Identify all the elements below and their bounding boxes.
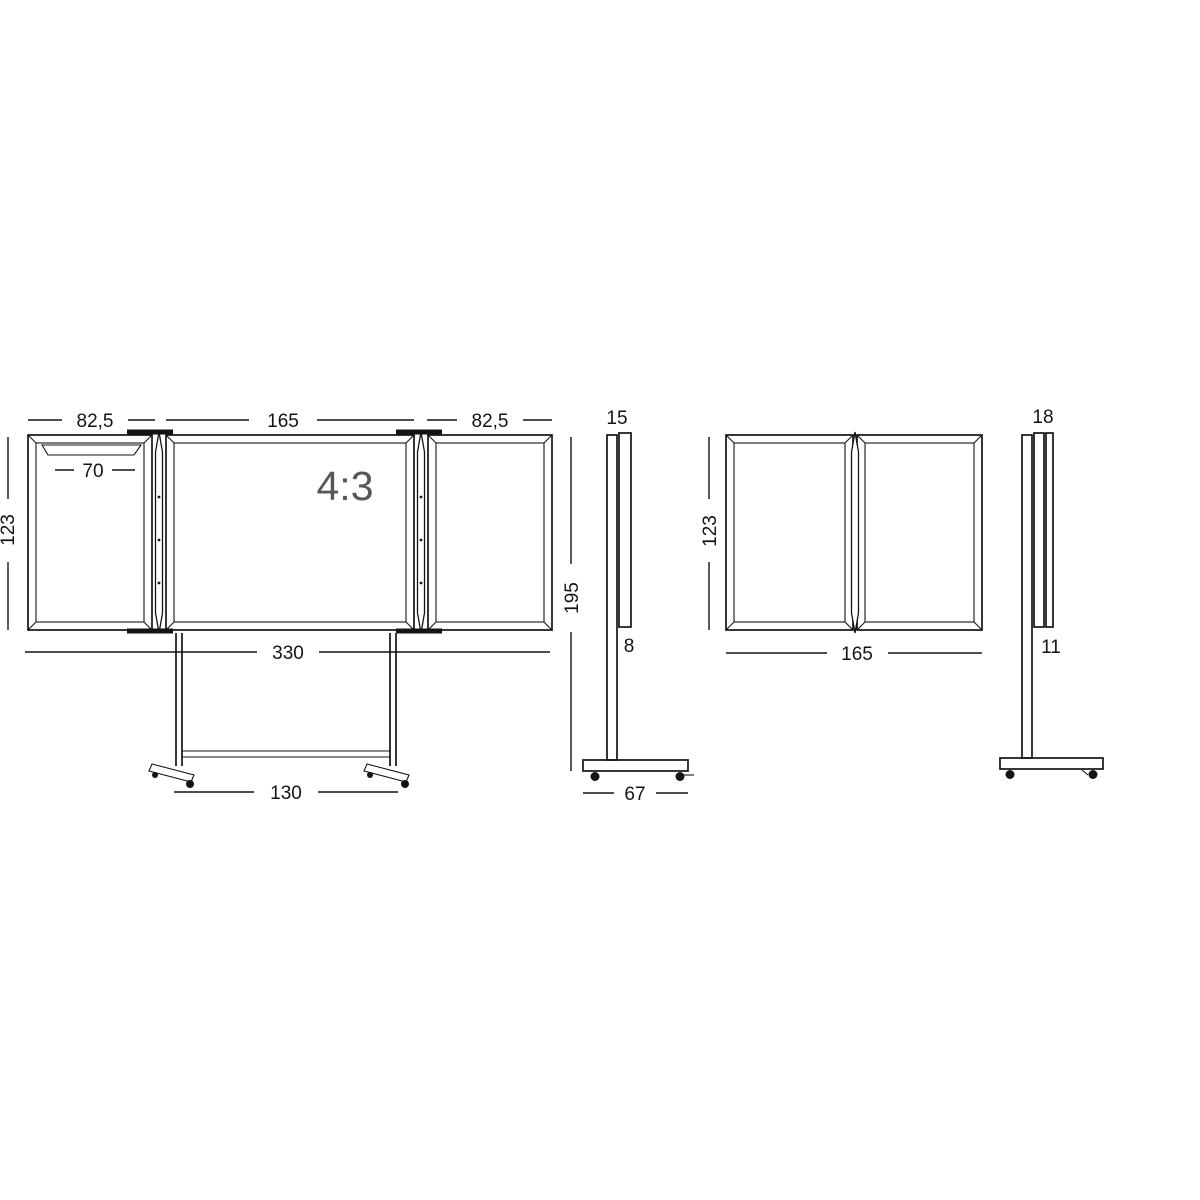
closed-side-base [1000,758,1103,769]
dim-wing-right: 82,5 [472,411,509,432]
clamp-bottom-left [127,629,173,634]
side-caster-right [676,772,685,781]
dim-panel-depth-closed: 11 [1041,637,1061,658]
dim-height-closed: 123 [700,515,721,547]
dimension-base-width: 130 [174,783,398,804]
dim-total-width: 330 [272,643,304,664]
closed-side-panel [1034,433,1044,627]
dimension-height-closed: 123 [700,437,721,630]
dim-depth-top-closed: 18 [1032,407,1053,428]
dim-height-open: 123 [0,514,19,546]
caster-left [149,764,194,788]
pen-tray [42,445,141,455]
dim-panel-depth-open: 8 [624,636,635,657]
dimension-top-widths: 82,5 165 82,5 [28,411,552,432]
dim-tray: 70 [82,461,103,482]
aspect-ratio-label: 4:3 [317,463,374,509]
dimension-stand-height: 195 [562,437,583,771]
closed-side-caster-left [1006,770,1015,779]
figure-side-open: 15 195 8 67 [562,408,694,805]
dimension-tray: 70 [55,461,135,482]
closed-right-panel [857,435,982,630]
side-base [583,760,688,771]
dimension-width-closed: 165 [726,644,982,665]
hinge-strip-right [418,432,425,633]
hinge-strip-left [156,432,163,633]
dimension-base-depth: 67 [583,784,688,805]
side-panel [619,433,631,627]
caster-right [364,764,409,788]
caster-bracket [1082,770,1088,775]
dimension-total-width: 330 [25,643,550,664]
dim-stand-height: 195 [562,582,583,614]
side-caster-left [591,772,600,781]
technical-drawing-canvas: 4:3 82,5 165 82,5 70 123 [0,0,1200,1200]
dim-depth-top-open: 15 [606,408,627,429]
dim-wing-left: 82,5 [77,411,114,432]
closed-center-joint [852,432,859,633]
clamp-top-left [127,430,173,435]
closed-left-panel [726,435,853,630]
figure-front-closed: 123 165 [700,432,982,665]
clamp-bottom-right [396,629,442,634]
dimension-height-open: 123 [0,437,19,630]
dim-width-closed: 165 [841,644,873,665]
dim-center: 165 [267,411,299,432]
closed-side-wing-layer [1046,433,1053,627]
side-post [607,435,617,760]
right-wing-panel [428,435,552,630]
drawing-page: 4:3 82,5 165 82,5 70 123 [0,0,1200,1200]
closed-side-caster-right [1089,770,1098,779]
figure-front-open: 4:3 82,5 165 82,5 70 123 [0,411,552,804]
dim-base-depth: 67 [624,784,645,805]
closed-side-post [1022,435,1032,758]
figure-side-closed: 18 11 [1000,407,1103,779]
dim-base-width: 130 [270,783,302,804]
center-panel [166,435,414,630]
clamp-top-right [396,430,442,435]
